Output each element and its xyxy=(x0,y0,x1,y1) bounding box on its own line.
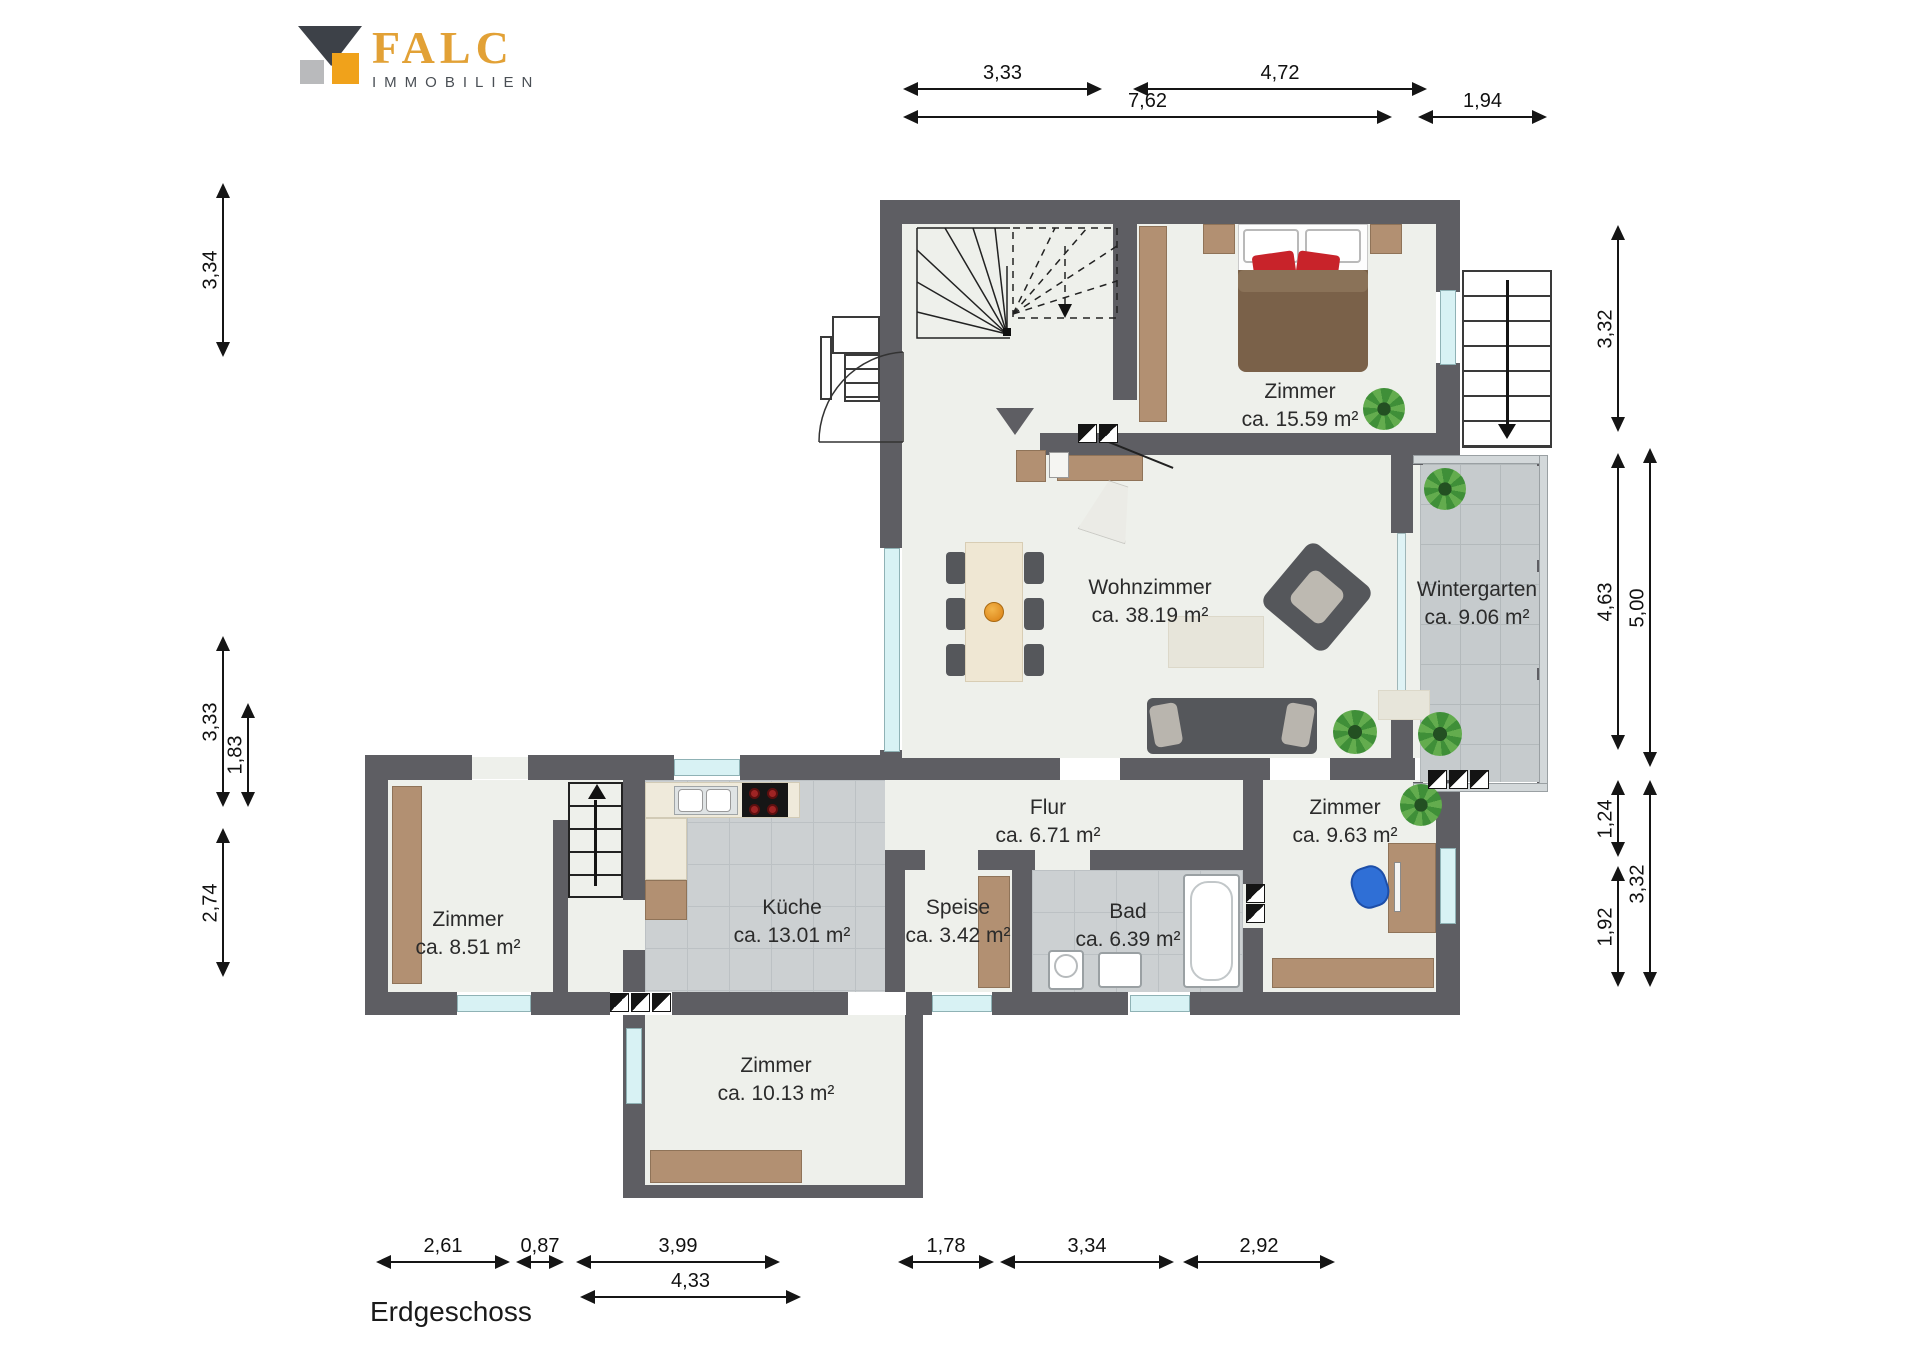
logo-subtitle: IMMOBILIEN xyxy=(372,74,540,91)
door-marker xyxy=(1099,424,1118,443)
wall xyxy=(531,992,610,1015)
dimension-0,87: 0,87 xyxy=(518,1261,562,1263)
wall xyxy=(365,755,388,1015)
floor-title: Erdgeschoss xyxy=(370,1296,532,1328)
dimension-1,94: 1,94 xyxy=(1420,116,1545,118)
room-label-bad: Badca. 6.39 m² xyxy=(1075,898,1180,954)
dimension-4,63: 4,63 xyxy=(1617,455,1619,748)
burner xyxy=(749,788,760,799)
dimension-3,99: 3,99 xyxy=(578,1261,778,1263)
dimension-2,92: 2,92 xyxy=(1185,1261,1333,1263)
wall xyxy=(1012,870,1032,992)
door-marker xyxy=(1428,770,1447,789)
window xyxy=(932,995,992,1012)
wgwall xyxy=(1413,455,1548,464)
wall xyxy=(902,758,1060,780)
entrance-arrow xyxy=(996,408,1034,435)
washbasin xyxy=(1098,952,1142,988)
dimension-1,78: 1,78 xyxy=(900,1261,992,1263)
burner xyxy=(749,804,760,815)
door-marker xyxy=(1246,884,1265,903)
logo-text: FALC IMMOBILIEN xyxy=(372,26,540,91)
dimension-2,74: 2,74 xyxy=(222,830,224,975)
dimension-3,32: 3,32 xyxy=(1617,227,1619,430)
door-marker xyxy=(1449,770,1468,789)
room-label-wohnzimmer: Wohnzimmerca. 38.19 m² xyxy=(1088,574,1211,630)
dimension-4,33: 4,33 xyxy=(582,1296,799,1298)
wall xyxy=(1391,455,1413,533)
room-label-flur: Flurca. 6.71 m² xyxy=(995,794,1100,850)
room-label-zimmer: Zimmerca. 8.51 m² xyxy=(415,906,520,962)
wall xyxy=(1436,200,1460,292)
wall xyxy=(1243,780,1263,884)
window xyxy=(884,548,900,752)
room-label-zimmer: Zimmerca. 9.63 m² xyxy=(1292,794,1397,850)
wall xyxy=(978,850,1035,870)
stairs-down-arrow xyxy=(1498,424,1516,439)
wall xyxy=(885,850,905,992)
shaft xyxy=(1506,280,1509,426)
falc-logo: FALC IMMOBILIEN xyxy=(298,26,540,91)
fixcirc xyxy=(1054,954,1078,978)
burner xyxy=(767,804,778,815)
wall xyxy=(880,200,1460,224)
wardrobe xyxy=(1139,226,1167,422)
side-table xyxy=(1016,450,1046,482)
logo-brand: FALC xyxy=(372,26,540,70)
burner xyxy=(767,788,778,799)
room-label-wintergarten: Wintergartenca. 9.06 m² xyxy=(1417,576,1537,632)
room-label-zimmer: Zimmerca. 15.59 m² xyxy=(1242,378,1359,434)
main-staircase xyxy=(915,226,1120,342)
wall xyxy=(623,1185,923,1198)
door-marker xyxy=(610,993,629,1012)
plant xyxy=(1400,784,1442,826)
window xyxy=(626,1028,642,1104)
door-marker xyxy=(1470,770,1489,789)
dining-chair xyxy=(946,644,966,676)
window xyxy=(1440,848,1456,924)
window xyxy=(674,759,740,776)
wall xyxy=(905,850,925,870)
door-marker xyxy=(652,993,671,1012)
room-label-küche: Kücheca. 13.01 m² xyxy=(734,894,851,950)
wall xyxy=(623,780,645,900)
window xyxy=(1440,290,1456,365)
nightstand xyxy=(1370,224,1402,254)
monitor xyxy=(1394,862,1401,912)
dimension-3,34: 3,34 xyxy=(222,185,224,355)
glass xyxy=(1397,533,1406,715)
plant xyxy=(1333,710,1377,754)
dimension-3,34: 3,34 xyxy=(1002,1261,1172,1263)
basin xyxy=(706,789,731,812)
stairs-up-arrow xyxy=(588,784,606,799)
wall xyxy=(1243,928,1263,992)
dining-chair xyxy=(946,552,966,584)
blanketband xyxy=(1238,270,1368,292)
dimension-3,33: 3,33 xyxy=(222,638,224,805)
wall xyxy=(1190,992,1460,1015)
logo-gray-square-icon xyxy=(300,60,324,84)
plant xyxy=(1424,468,1466,510)
door-marker xyxy=(631,993,650,1012)
floor xyxy=(472,757,528,779)
wall xyxy=(672,992,848,1015)
logo-orange-square-icon xyxy=(332,53,359,84)
falc-logo-icon xyxy=(298,26,362,86)
basin xyxy=(678,789,703,812)
tv-board xyxy=(1057,455,1143,481)
dimension-2,61: 2,61 xyxy=(378,1261,508,1263)
room-label-zimmer: Zimmerca. 10.13 m² xyxy=(718,1052,835,1108)
wall xyxy=(528,755,674,780)
wall xyxy=(905,1015,923,1185)
door-marker xyxy=(1078,424,1097,443)
wall xyxy=(623,950,645,992)
wall xyxy=(1330,758,1415,780)
dimension-7,62: 7,62 xyxy=(905,116,1390,118)
wall xyxy=(740,755,902,780)
chair xyxy=(1049,452,1069,478)
sideboard xyxy=(650,1150,802,1183)
wall xyxy=(1090,850,1243,870)
dining-chair xyxy=(1024,598,1044,630)
wall xyxy=(553,820,568,992)
dimension-1,92: 1,92 xyxy=(1617,868,1619,985)
floorplan-page: FALC IMMOBILIEN Zimmerca. 15.59 m²Wohnzi… xyxy=(0,0,1920,1357)
window xyxy=(1130,995,1190,1012)
rug xyxy=(1378,690,1430,720)
room-label-speise: Speiseca. 3.42 m² xyxy=(905,894,1010,950)
dining-chair xyxy=(946,598,966,630)
wall xyxy=(1137,433,1436,455)
bowl xyxy=(984,602,1004,622)
sideboard xyxy=(1272,958,1434,988)
dimension-5,00: 5,00 xyxy=(1649,450,1651,765)
tubin xyxy=(1190,881,1233,981)
wall xyxy=(992,992,1128,1015)
wgwall xyxy=(1539,455,1548,792)
dimension-3,33: 3,33 xyxy=(905,88,1100,90)
dimension-4,72: 4,72 xyxy=(1135,88,1425,90)
window xyxy=(457,995,531,1012)
dining-chair xyxy=(1024,644,1044,676)
shaft xyxy=(594,800,597,886)
wall xyxy=(1436,363,1460,457)
entrance-door-arc xyxy=(815,348,907,446)
wall xyxy=(365,992,457,1015)
plant xyxy=(1363,388,1405,430)
kitchen-counter xyxy=(645,818,687,880)
dimension-1,24: 1,24 xyxy=(1617,782,1619,855)
kitchen-cabinet xyxy=(645,880,687,920)
dimension-3,32: 3,32 xyxy=(1649,782,1651,985)
plant xyxy=(1418,712,1462,756)
dimension-1,83: 1,83 xyxy=(247,705,249,805)
wall xyxy=(1120,758,1270,780)
nightstand xyxy=(1203,224,1235,254)
door-marker xyxy=(1246,904,1265,923)
dining-chair xyxy=(1024,552,1044,584)
wall xyxy=(906,992,932,1015)
